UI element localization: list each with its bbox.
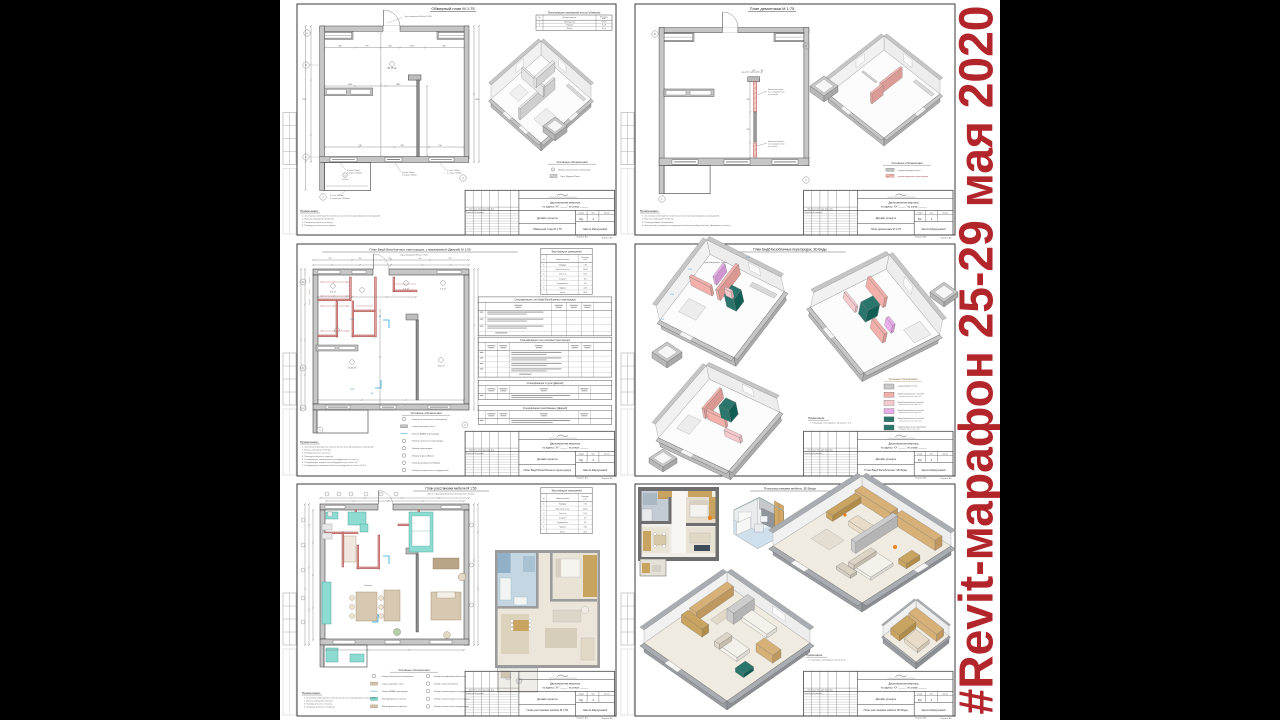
svg-text:#Revit-марафон 25-29 мая 2020: #Revit-марафон 25-29 мая 2020: [951, 6, 1001, 715]
